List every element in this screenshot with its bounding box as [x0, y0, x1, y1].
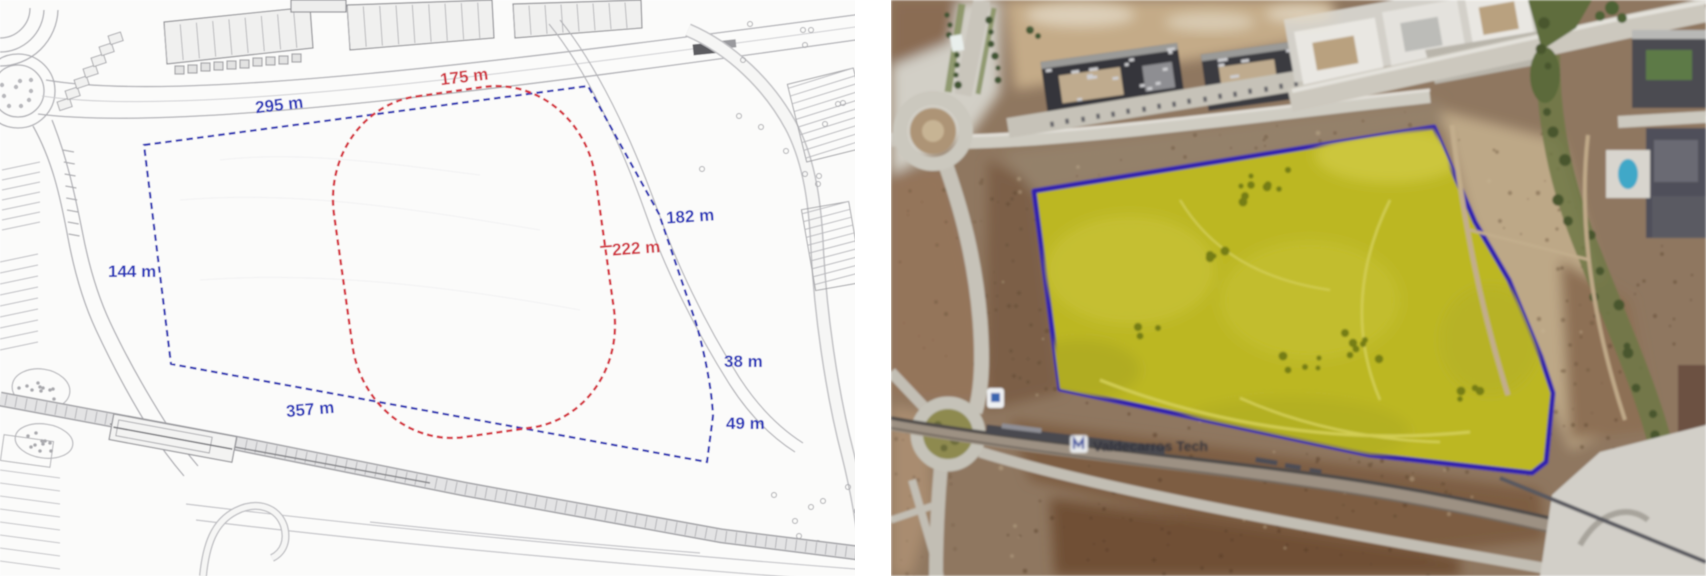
svg-text:222 m: 222 m: [611, 237, 660, 259]
svg-text:144 m: 144 m: [108, 262, 156, 281]
svg-text:182 m: 182 m: [665, 205, 714, 227]
svg-text:49 m: 49 m: [726, 414, 765, 433]
svg-text:Valdecarros Tech: Valdecarros Tech: [1093, 438, 1208, 454]
svg-text:38 m: 38 m: [724, 352, 763, 371]
